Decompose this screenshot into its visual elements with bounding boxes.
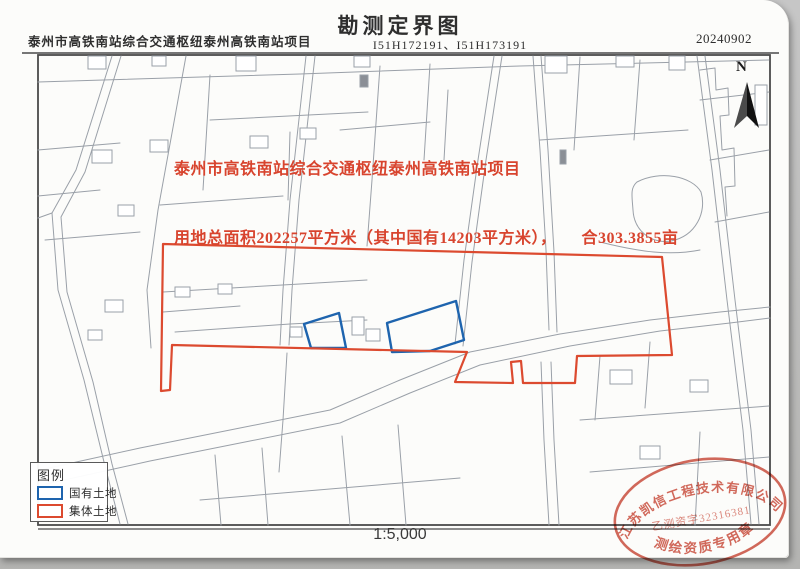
company-seal: 江苏凯信工程技术有限公司 乙测资字32316381 测绘资质专用章: [600, 441, 800, 569]
seal-company-name: 江苏凯信工程技术有限公司: [609, 467, 788, 543]
paper-page: 泰州市高铁南站综合交通枢纽泰州高铁南站项目 勘测定界图 I51H172191、I…: [0, 0, 789, 558]
north-label: N: [736, 59, 747, 76]
map-date: 20240902: [696, 31, 752, 47]
annotation-line1: 泰州市高铁南站综合交通枢纽泰州高铁南站项目: [174, 158, 679, 181]
collective-land-swatch: [37, 504, 63, 518]
area-annotation: 泰州市高铁南站综合交通枢纽泰州高铁南站项目 用地总面积202257平方米（其中国…: [174, 112, 679, 296]
scanned-survey-map: 泰州市高铁南站综合交通枢纽泰州高铁南站项目 勘测定界图 I51H172191、I…: [0, 0, 800, 569]
legend-title: 图例: [37, 465, 65, 484]
svg-text:江苏凯信工程技术有限公司: 江苏凯信工程技术有限公司: [609, 467, 788, 543]
legend-item-label: 集体土地: [69, 503, 117, 519]
legend: 图例 国有土地 集体土地: [30, 462, 108, 522]
state-owned-land-boundaries: [304, 301, 464, 352]
map-scale: 1:5,000: [330, 526, 470, 544]
map-sheet-numbers: I51H172191、I51H173191: [250, 36, 650, 53]
north-arrow-icon: [734, 82, 759, 128]
state-land-swatch: [37, 486, 63, 500]
legend-item-label: 国有土地: [69, 485, 117, 501]
legend-item-state-land: 国有土地: [37, 485, 117, 501]
annotation-line2: 用地总面积202257平方米（其中国有14203平方米）， 合303.3855亩: [174, 227, 679, 250]
legend-item-collective-land: 集体土地: [37, 503, 117, 519]
